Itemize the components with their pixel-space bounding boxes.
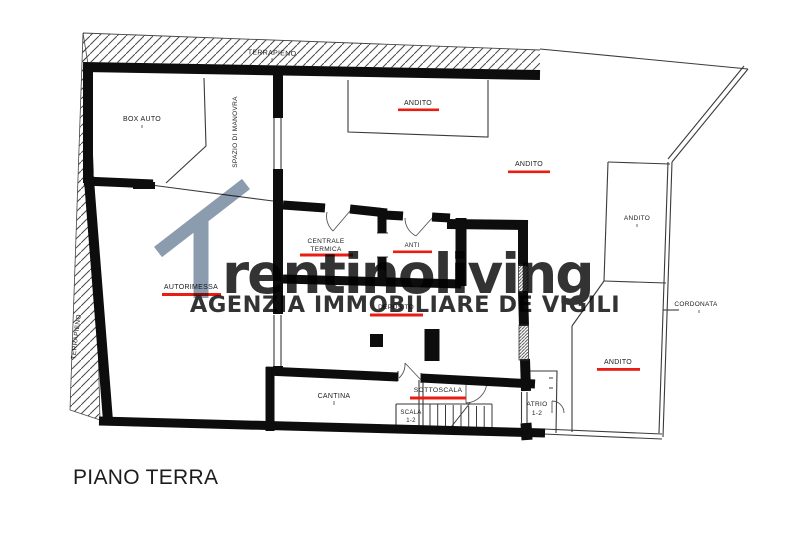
atrio-label-line1: ATRIO bbox=[527, 401, 548, 408]
floor-plan-page: TERRAPIENO TERRAPIENO BOX AUTO SPAZIO DI… bbox=[0, 0, 800, 533]
cordonata-label: CORDONATA bbox=[674, 301, 718, 308]
watermark: rentinoliving AGENZIA IMMOBILIARE DE VIG… bbox=[158, 184, 620, 318]
watermark-tagline: AGENZIA IMMOBILIARE DE VIGILI bbox=[190, 292, 620, 318]
cantina-label: CANTINA bbox=[318, 393, 351, 400]
andito-lower-right-label: ANDITO bbox=[604, 359, 632, 366]
spazio-di-manovra-label: SPAZIO DI MANOVRA bbox=[232, 96, 239, 168]
floor-plan-svg: TERRAPIENO TERRAPIENO BOX AUTO SPAZIO DI… bbox=[0, 0, 800, 533]
andito-upper-right-label: ANDITO bbox=[624, 215, 650, 222]
box-auto-label: BOX AUTO bbox=[123, 116, 161, 123]
window-icon bbox=[519, 325, 529, 360]
pillar bbox=[370, 334, 383, 347]
andito-center-label: ANDITO bbox=[515, 161, 543, 168]
wall-step bbox=[133, 182, 155, 189]
sottoscala-label: SOTTOSCALA bbox=[414, 387, 463, 394]
autorimessa-label: AUTORIMESSA bbox=[164, 284, 218, 291]
andito-top-label: ANDITO bbox=[404, 100, 432, 107]
page-title: PIANO TERRA bbox=[73, 466, 218, 489]
scala-label-line1: SCALA bbox=[400, 410, 421, 416]
atrio-label-line2: 1-2 bbox=[532, 410, 542, 417]
scala-label-line2: 1-2 bbox=[406, 418, 416, 424]
